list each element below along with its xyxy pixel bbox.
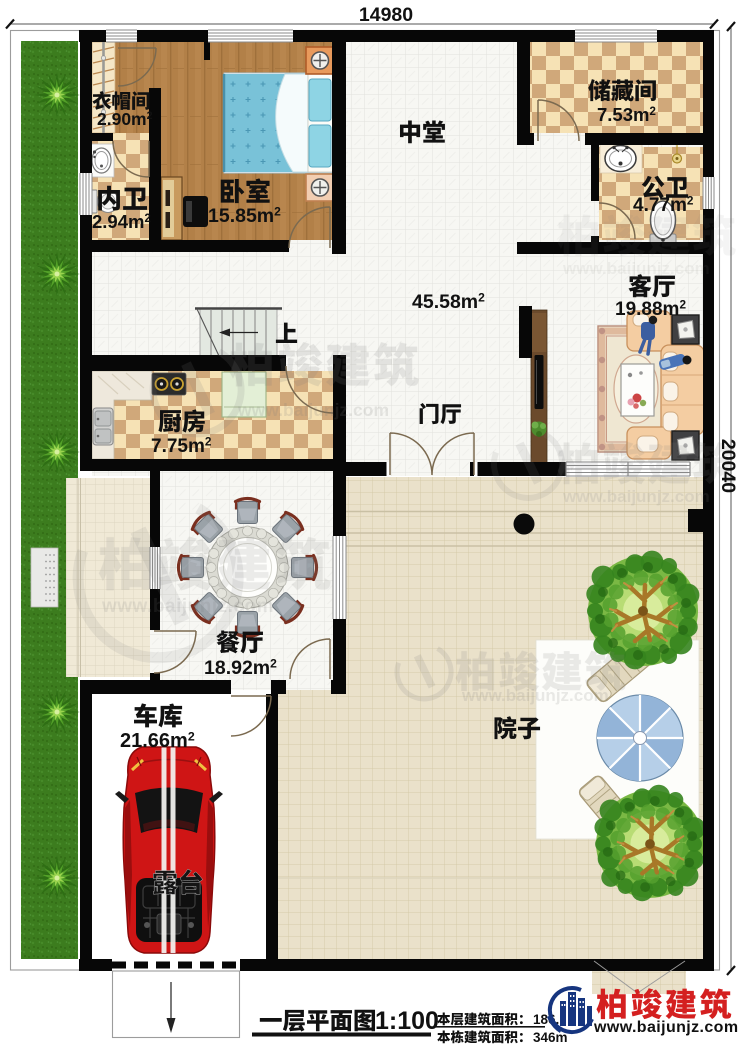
svg-text:14980: 14980 xyxy=(359,4,413,26)
svg-text:www.baijunjz.com: www.baijunjz.com xyxy=(593,1019,739,1036)
svg-text:www.baijunjz.com: www.baijunjz.com xyxy=(237,400,389,420)
svg-text:www.baijunjz.com: www.baijunjz.com xyxy=(562,259,710,278)
svg-text:45.58m2: 45.58m2 xyxy=(412,291,485,313)
svg-text:18.92m2: 18.92m2 xyxy=(204,657,277,679)
svg-text:15.85m2: 15.85m2 xyxy=(208,205,281,227)
svg-text:www.baijunjz.com: www.baijunjz.com xyxy=(101,596,274,617)
svg-text:20040: 20040 xyxy=(717,439,739,493)
svg-text:2.90m2: 2.90m2 xyxy=(97,109,153,129)
svg-text:7.75m2: 7.75m2 xyxy=(151,435,212,457)
svg-text:www.baijunjz.com: www.baijunjz.com xyxy=(562,487,710,506)
svg-text:21.66m2: 21.66m2 xyxy=(120,729,195,752)
svg-text:2.94m2: 2.94m2 xyxy=(92,211,151,232)
svg-text:19.88m2: 19.88m2 xyxy=(615,298,686,320)
svg-text:346m: 346m xyxy=(533,1030,568,1045)
svg-text:7.53m2: 7.53m2 xyxy=(597,104,656,125)
svg-text:4.77m2: 4.77m2 xyxy=(633,194,694,216)
svg-text:www.baijunjz.com: www.baijunjz.com xyxy=(461,686,609,705)
svg-text:1:100: 1:100 xyxy=(375,1007,439,1035)
